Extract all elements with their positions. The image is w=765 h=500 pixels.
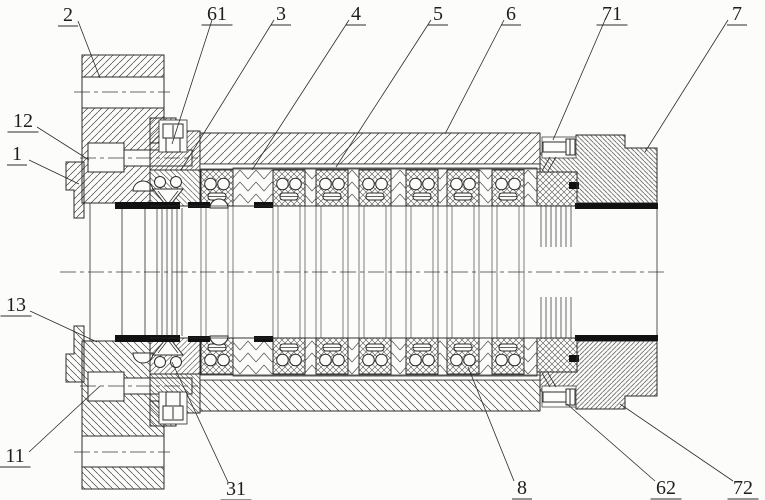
bearing-ball [410, 178, 422, 190]
leader-line-13 [30, 311, 97, 342]
bearing-unit [492, 170, 524, 272]
front-ring-part [66, 162, 84, 218]
part-label-61: 61 [207, 3, 227, 25]
leader-line-12 [37, 127, 89, 160]
assembly-top-half [66, 55, 658, 272]
part-label-62: 62 [656, 477, 676, 499]
bearing-ball [496, 178, 508, 190]
shaft-lines [90, 203, 657, 272]
bearing-ball [451, 178, 463, 190]
part-label-31: 31 [226, 478, 246, 500]
bearing-unit [316, 170, 348, 272]
shaft-nose-part [150, 170, 200, 206]
drawing-canvas: 261345671712113113186272 [0, 0, 765, 500]
part-label-8: 8 [517, 477, 527, 499]
part-label-1: 1 [12, 143, 22, 165]
part-label-3: 3 [276, 3, 286, 25]
bearing-ball [423, 178, 435, 190]
labyrinth-seal [537, 172, 579, 247]
leader-line-72 [620, 404, 733, 481]
bearing-unit [447, 170, 479, 272]
callout-62: 62 [567, 404, 682, 499]
part-label-71: 71 [602, 3, 622, 25]
callout-6: 6 [445, 3, 521, 134]
part-label-7: 7 [732, 3, 742, 25]
drawbar-lines [157, 208, 182, 272]
callout-7: 7 [645, 3, 747, 152]
bearing-unit [406, 170, 438, 272]
leader-line-7 [645, 20, 728, 152]
part-label-4: 4 [351, 3, 361, 25]
assembly-cross-section: 261345671712113113186272 [0, 0, 765, 500]
part-label-13: 13 [6, 294, 26, 316]
part-label-6: 6 [506, 3, 516, 25]
bearing-unit [201, 170, 233, 272]
bearing-ball [509, 178, 521, 190]
bearing-ball [277, 178, 289, 190]
assembly-bottom-half [66, 272, 658, 489]
bearing-ball [218, 178, 230, 190]
part-label-5: 5 [433, 3, 443, 25]
part-label-11: 11 [5, 445, 24, 467]
leader-line-71 [553, 20, 605, 140]
bearing-ball [363, 178, 375, 190]
flange-bolt-hole [82, 77, 164, 108]
callout-72: 72 [620, 404, 759, 499]
callout-71: 71 [553, 3, 628, 140]
part-label-2: 2 [63, 4, 73, 26]
bearing-ball [333, 178, 345, 190]
housing-part [200, 133, 540, 169]
bearing-unit [359, 170, 391, 272]
bearing-ball [376, 178, 388, 190]
leader-line-61 [172, 20, 212, 144]
leader-line-62 [567, 404, 655, 481]
bearing-ball [290, 178, 302, 190]
leader-line-6 [445, 20, 504, 134]
set-screw-61 [159, 120, 187, 152]
bearing-unit [273, 170, 305, 272]
bearing-ball [205, 178, 217, 190]
part-label-12: 12 [13, 110, 33, 132]
bearing-ball [320, 178, 332, 190]
part-label-72: 72 [733, 477, 753, 499]
bearing-ball [464, 178, 476, 190]
